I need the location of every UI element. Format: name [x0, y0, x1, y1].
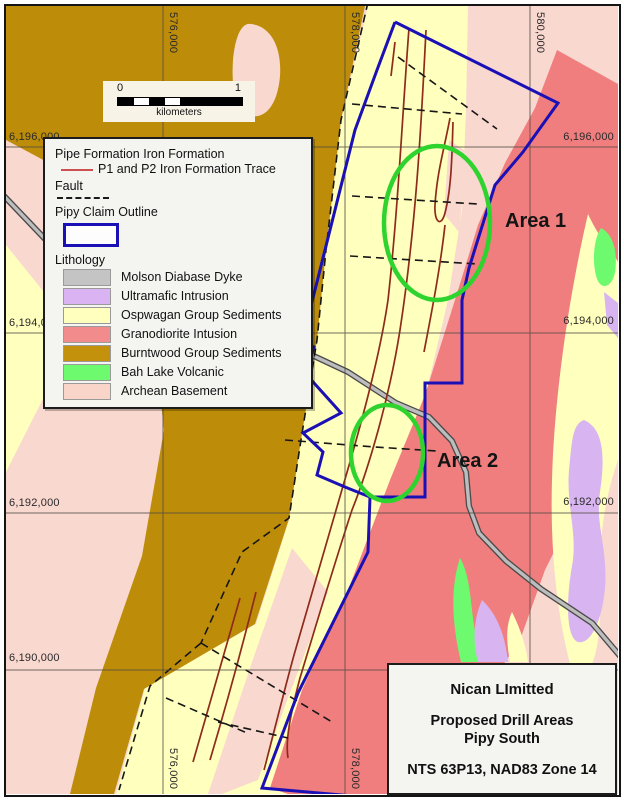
lithology-label: Molson Diabase Dyke — [121, 269, 243, 286]
scale-bar: 0 1 kilometers — [103, 81, 255, 122]
lithology-label: Ultramafic Intrusion — [121, 288, 229, 305]
map-title-line1: Proposed Drill Areas — [431, 712, 574, 730]
map-reference: NTS 63P13, NAD83 Zone 14 — [407, 762, 596, 778]
granodiorite-swatch — [63, 326, 111, 343]
lithology-row-ultramafic-intrusion: Ultramafic Intrusion — [55, 287, 303, 306]
ospwagan-swatch — [63, 307, 111, 324]
scale-end-label: 1 — [235, 82, 241, 94]
grid-label-bottom-578000: 578,000 — [349, 748, 361, 789]
legend-iron-formation-heading: Pipe Formation Iron Formation — [55, 146, 303, 162]
scale-bar-graphic — [117, 97, 243, 106]
lithology-row-archean-basement: Archean Basement — [55, 382, 303, 401]
grid-label-top-580000: 580,000 — [534, 12, 546, 53]
scale-start-label: 0 — [117, 82, 123, 94]
scale-unit-label: kilometers — [103, 107, 255, 118]
grid-label-left-6192000: 6,192,000 — [9, 497, 60, 509]
lithology-row-bah-lake-volcanic: Bah Lake Volcanic — [55, 363, 303, 382]
area-1-label: Area 1 — [505, 210, 566, 233]
iron-trace-line-symbol — [61, 169, 93, 171]
lithology-row-granodiorite-intrusion: Granodiorite Intusion — [55, 325, 303, 344]
legend-lithology-heading: Lithology — [55, 252, 303, 268]
grid-label-right-6194000: 6,194,000 — [544, 315, 614, 327]
claim-outline-symbol — [63, 223, 119, 247]
map-page: 576,000 578,000 580,000 576,000 578,000 … — [0, 0, 624, 800]
grid-label-right-6196000: 6,196,000 — [544, 131, 614, 143]
grid-label-left-6190000: 6,190,000 — [9, 652, 60, 664]
grid-label-top-576000: 576,000 — [167, 12, 179, 53]
title-block: Nican LImitted Proposed Drill Areas Pipy… — [387, 663, 617, 795]
area-2-label: Area 2 — [437, 450, 498, 473]
lithology-label: Granodiorite Intusion — [121, 326, 237, 343]
lithology-label: Ospwagan Group Sediments — [121, 307, 282, 324]
legend-panel: Pipe Formation Iron Formation P1 and P2 … — [43, 137, 313, 409]
company-name: Nican LImitted — [450, 681, 553, 698]
lithology-label: Bah Lake Volcanic — [121, 364, 224, 381]
grid-label-right-6192000: 6,192,000 — [544, 496, 614, 508]
iron-trace-label: P1 and P2 Iron Formation Trace — [98, 162, 276, 178]
map-title-line2: Pipy South — [464, 730, 540, 748]
lithology-label: Burntwood Group Sediments — [121, 345, 282, 362]
lithology-label: Archean Basement — [121, 383, 227, 400]
archean-swatch — [63, 383, 111, 400]
molson-diabase-swatch — [63, 269, 111, 286]
legend-fault-label: Fault — [55, 178, 303, 194]
lithology-row-burntwood-sediments: Burntwood Group Sediments — [55, 344, 303, 363]
legend-claim-outline-label: Pipy Claim Outline — [55, 204, 303, 220]
burntwood-swatch — [63, 345, 111, 362]
lithology-row-ospwagan-sediments: Ospwagan Group Sediments — [55, 306, 303, 325]
fault-line-symbol — [57, 197, 109, 199]
grid-label-top-578000: 578,000 — [349, 12, 361, 53]
grid-label-bottom-576000: 576,000 — [167, 748, 179, 789]
lithology-row-molson-diabase-dyke: Molson Diabase Dyke — [55, 268, 303, 287]
ultramafic-swatch — [63, 288, 111, 305]
bah-lake-swatch — [63, 364, 111, 381]
